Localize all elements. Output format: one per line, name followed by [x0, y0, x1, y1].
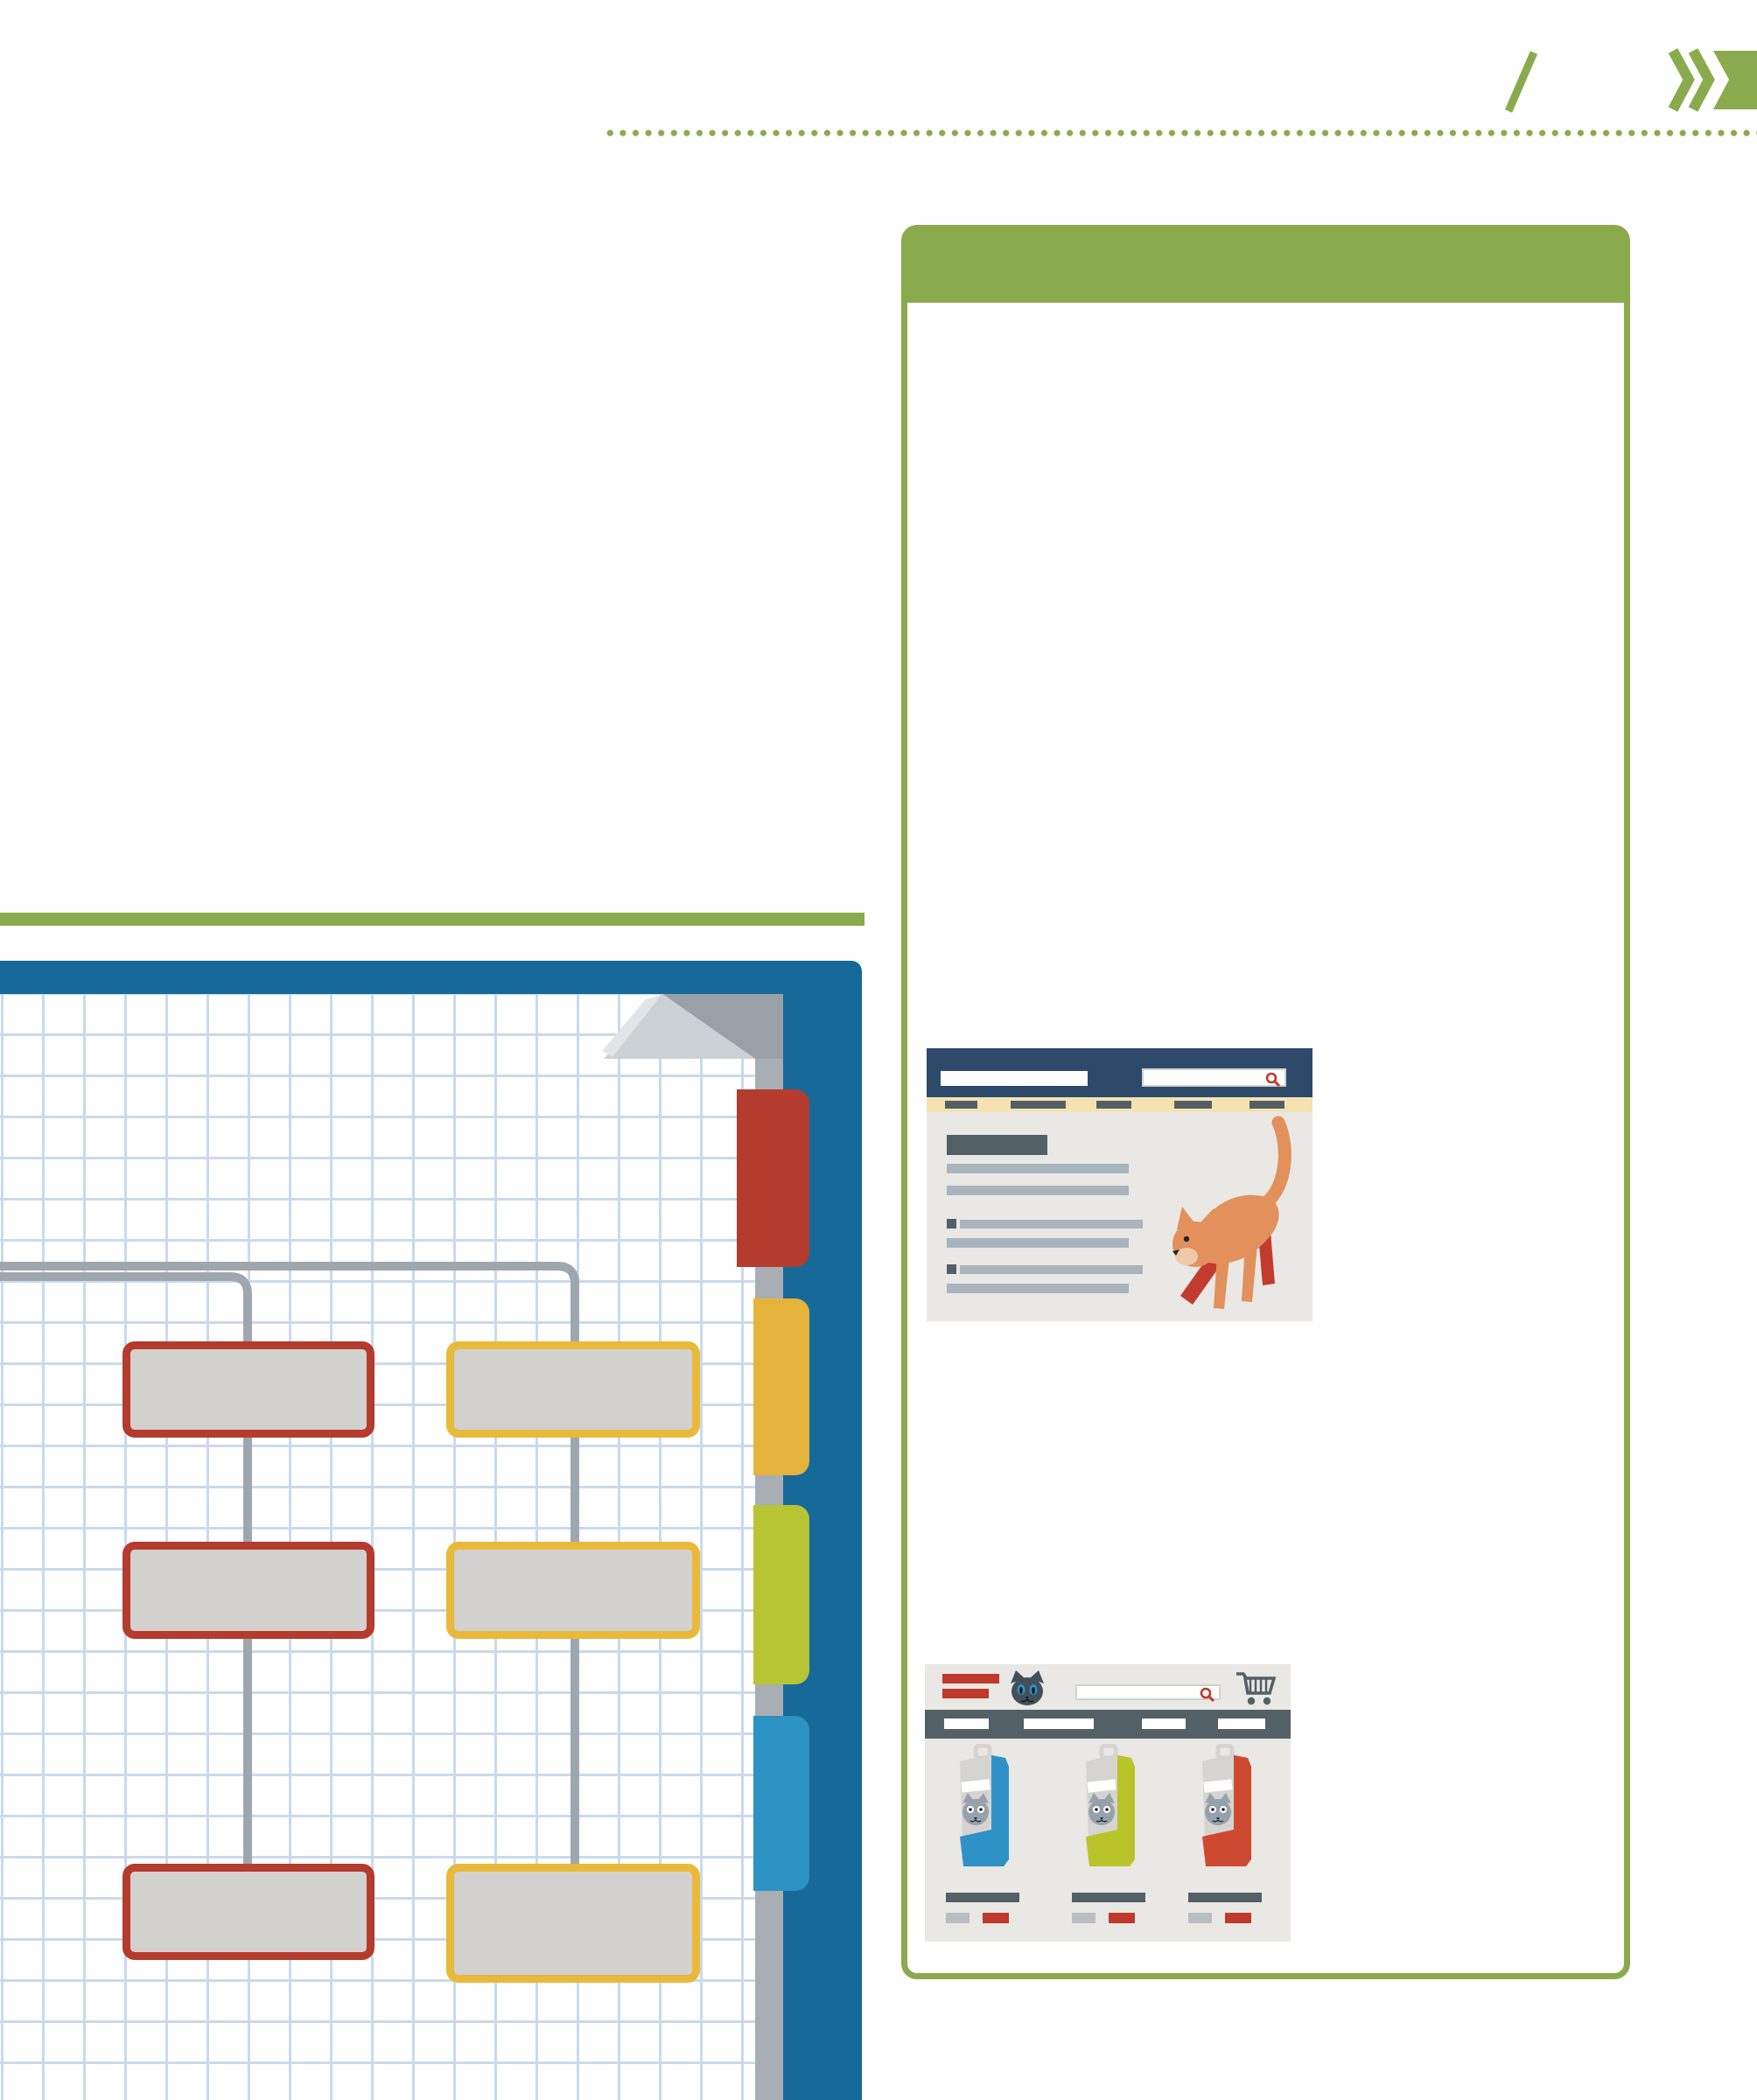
fast-forward-chevrons-icon: [1654, 17, 1757, 131]
green-divider-bar: [0, 913, 864, 926]
mockup-nav-item: [1011, 1101, 1066, 1109]
product-price-bar: [1225, 1913, 1251, 1923]
product-price-bar: [1109, 1913, 1135, 1923]
notebook-tab-blue: [753, 1716, 809, 1891]
mockup-text-line: [960, 1220, 1143, 1228]
product-card: [1188, 1744, 1284, 1928]
sitemap-box-yellow-column: [446, 1542, 700, 1639]
logo-placeholder: [941, 1071, 1088, 1086]
dotted-divider-line: [604, 129, 1757, 137]
product-meta-bar: [946, 1913, 969, 1923]
product-title-bar: [1072, 1893, 1145, 1902]
mockup-text-line: [947, 1284, 1129, 1293]
search-input: [1075, 1684, 1221, 1700]
cat-food-bag-illustration: [1193, 1744, 1262, 1875]
mockup-nav-item: [1218, 1718, 1265, 1729]
mockup-shop-content: [925, 1739, 1291, 1942]
mockup-shop-header: [925, 1664, 1291, 1710]
mockup-nav-item: [1142, 1718, 1186, 1729]
product-price-bar: [983, 1913, 1009, 1923]
sitemap-box-red-column: [122, 1864, 374, 1960]
product-meta-bar: [1072, 1913, 1095, 1923]
shop-logo-bar: [942, 1689, 989, 1698]
mockup-text-line: [947, 1186, 1129, 1195]
notebook-tab-lime: [753, 1505, 809, 1684]
shop-logo-bar: [942, 1674, 999, 1683]
mockup-nav-item: [1174, 1101, 1212, 1109]
shopping-cart-icon: [1234, 1668, 1277, 1708]
product-card: [1072, 1744, 1168, 1928]
folded-page-corner: [595, 994, 783, 1060]
mockup-nav-item: [1096, 1101, 1131, 1109]
mockup-browser-header: [927, 1048, 1312, 1097]
mockup-text-bullet-line: [947, 1264, 1144, 1275]
sitemap-box-red-column: [122, 1341, 374, 1438]
cat-food-bag-illustration: [951, 1744, 1019, 1875]
mockup-nav-item: [1249, 1101, 1284, 1109]
mockup-text-line: [947, 1164, 1129, 1173]
sitemap-box-red-column: [122, 1542, 374, 1639]
book-page: [0, 0, 1757, 2100]
article-website-mockup: [927, 1048, 1312, 1321]
magnifier-icon: [1264, 1070, 1284, 1088]
slash-icon: [1487, 39, 1549, 122]
mockup-text-bullet-line: [947, 1219, 1144, 1229]
mockup-nav-item: [1024, 1718, 1094, 1729]
mockup-text-line: [947, 1238, 1129, 1248]
mockup-text-heading: [947, 1135, 1047, 1155]
mockup-bullet: [947, 1219, 956, 1228]
panel-header-band: [906, 230, 1625, 303]
mockup-nav-item: [944, 1718, 989, 1729]
sitemap-box-yellow-column: [446, 1864, 700, 1983]
cat-food-bag-illustration: [1077, 1744, 1145, 1875]
shop-website-mockup: [925, 1664, 1291, 1942]
product-meta-bar: [1188, 1913, 1212, 1923]
mockup-text-line: [960, 1265, 1143, 1274]
product-title-bar: [946, 1893, 1019, 1902]
walking-cat-illustration: [1159, 1114, 1308, 1319]
sitemap-box-yellow-column: [446, 1341, 700, 1438]
product-title-bar: [1188, 1893, 1262, 1902]
cat-head-logo-icon: [1008, 1669, 1046, 1707]
search-input: [1142, 1068, 1286, 1087]
notebook-tab-red: [737, 1089, 809, 1267]
notebook-tab-amber: [753, 1298, 809, 1475]
mockup-nav-item: [945, 1101, 977, 1109]
product-card: [946, 1744, 1042, 1928]
mockup-content-area: [927, 1112, 1312, 1321]
mockup-bullet: [947, 1264, 956, 1274]
mockup-shop-nav-bar: [925, 1710, 1291, 1739]
mockup-nav-bar: [927, 1097, 1312, 1112]
magnifier-icon: [1199, 1685, 1218, 1703]
